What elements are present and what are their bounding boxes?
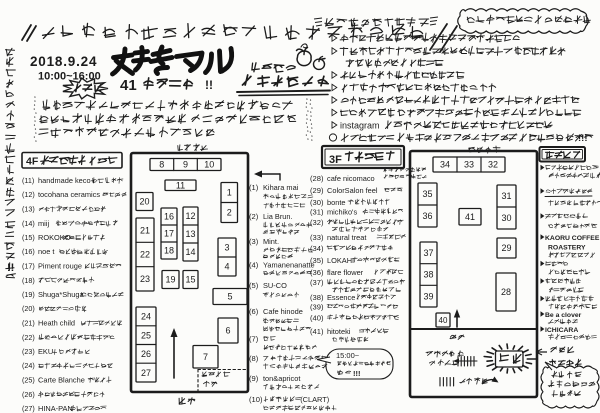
svg-text:(15): (15): [22, 233, 35, 242]
svg-text:(7): (7): [249, 335, 259, 344]
svg-text:(12): (12): [22, 190, 35, 199]
svg-text:19: 19: [165, 275, 175, 285]
svg-text:8: 8: [159, 160, 164, 170]
svg-text:25: 25: [141, 330, 151, 340]
svg-text:Kihara mai: Kihara mai: [263, 183, 299, 192]
svg-text:(18): (18): [22, 276, 35, 285]
svg-text:38: 38: [423, 270, 433, 280]
svg-text:(21): (21): [22, 319, 35, 328]
svg-text:3F: 3F: [329, 154, 342, 166]
svg-text:(8): (8): [249, 354, 259, 363]
svg-text:(29): (29): [310, 186, 324, 195]
svg-text:(24): (24): [22, 361, 35, 370]
svg-text:(16): (16): [22, 247, 35, 256]
svg-text:Be a clover: Be a clover: [545, 312, 582, 319]
svg-text:2: 2: [227, 208, 232, 218]
svg-text:(14): (14): [22, 219, 35, 228]
svg-text:(38): (38): [310, 293, 324, 302]
svg-text:29: 29: [501, 243, 511, 253]
svg-text:18: 18: [164, 246, 174, 256]
svg-text:39: 39: [423, 291, 433, 301]
svg-text:instagram: instagram: [340, 121, 380, 131]
svg-text:(13): (13): [22, 205, 35, 214]
svg-text:ROASTERY: ROASTERY: [548, 244, 586, 251]
svg-text:(19): (19): [22, 290, 35, 299]
svg-text:KAORU COFFEE: KAORU COFFEE: [545, 235, 600, 242]
svg-text:(25): (25): [22, 376, 35, 385]
svg-text:12: 12: [185, 211, 195, 221]
svg-text:32: 32: [488, 160, 498, 170]
svg-text:28: 28: [501, 287, 511, 297]
svg-text:SU-CO: SU-CO: [263, 281, 287, 290]
svg-text:HINA-PAN: HINA-PAN: [38, 404, 73, 413]
svg-text:miij: miij: [38, 219, 49, 228]
svg-text:(39): (39): [310, 303, 324, 312]
svg-text:Carte Blanche: Carte Blanche: [38, 376, 85, 385]
svg-text:10: 10: [204, 160, 214, 170]
svg-text:6: 6: [225, 326, 230, 336]
svg-text:40: 40: [439, 316, 448, 325]
svg-text:31: 31: [501, 191, 511, 201]
svg-text:(26): (26): [22, 390, 35, 399]
svg-text:(37): (37): [310, 278, 324, 287]
svg-text:(36): (36): [310, 268, 324, 277]
svg-text:Yamanenanatte: Yamanenanatte: [263, 261, 315, 270]
svg-text:hitoteki: hitoteki: [327, 327, 351, 336]
svg-text:(3): (3): [249, 237, 259, 246]
svg-text:15: 15: [185, 275, 195, 285]
svg-text:22: 22: [140, 250, 150, 260]
svg-text:(35): (35): [310, 256, 324, 265]
svg-text:natural treat: natural treat: [327, 233, 366, 242]
svg-text:(11): (11): [22, 176, 34, 185]
svg-text:(9): (9): [249, 374, 259, 383]
svg-text:(20): (20): [22, 304, 35, 313]
svg-text:(6): (6): [249, 307, 259, 316]
svg-text:17: 17: [164, 229, 174, 239]
svg-text:2018.9.24: 2018.9.24: [30, 54, 97, 69]
svg-text:flare flower: flare flower: [327, 268, 364, 277]
svg-text:11: 11: [176, 181, 185, 191]
svg-text:handmade keco+: handmade keco+: [38, 176, 95, 185]
svg-text:24: 24: [141, 312, 151, 322]
svg-text:(32): (32): [310, 218, 324, 227]
svg-text:(31): (31): [310, 208, 324, 217]
svg-text:(23): (23): [22, 347, 35, 356]
svg-text:EKU: EKU: [38, 347, 53, 356]
svg-text:34: 34: [440, 160, 450, 170]
svg-text:ICHICARA: ICHICARA: [545, 327, 578, 334]
svg-text:!!: !!: [205, 78, 213, 92]
svg-text:4: 4: [224, 262, 229, 272]
svg-text:26: 26: [141, 349, 151, 359]
svg-text:16: 16: [164, 212, 174, 222]
svg-text:35: 35: [422, 189, 432, 199]
svg-text:33: 33: [464, 160, 474, 170]
svg-text:(34): (34): [310, 244, 324, 253]
svg-text:(10): (10): [249, 395, 263, 404]
svg-text:1: 1: [227, 188, 232, 198]
svg-text:(5): (5): [249, 281, 259, 290]
svg-text:!!!: !!!: [578, 133, 588, 144]
svg-text:15:00~: 15:00~: [336, 351, 360, 360]
svg-text:Piment rouge: Piment rouge: [38, 262, 82, 271]
svg-text:cafe nicomaco: cafe nicomaco: [327, 174, 375, 183]
svg-text:noe t: noe t: [38, 247, 54, 256]
svg-text:ton&apricot: ton&apricot: [263, 374, 300, 383]
svg-text:michiko's: michiko's: [327, 208, 357, 217]
svg-text:(1): (1): [249, 183, 259, 192]
svg-text:Heath child: Heath child: [38, 319, 75, 328]
svg-text:14: 14: [185, 247, 195, 257]
svg-text:Shuga*Shuga: Shuga*Shuga: [38, 290, 85, 299]
svg-text:5: 5: [227, 292, 232, 302]
svg-text:3: 3: [224, 243, 229, 253]
svg-text:LOKAHI: LOKAHI: [327, 256, 354, 265]
svg-text:13: 13: [185, 229, 195, 239]
svg-text:ColorSalon feel: ColorSalon feel: [327, 186, 378, 195]
svg-text:21: 21: [140, 225, 150, 235]
svg-text:36: 36: [422, 211, 432, 221]
svg-text:tocohana ceramics: tocohana ceramics: [38, 190, 100, 199]
svg-text:37: 37: [423, 248, 433, 258]
svg-text:(4): (4): [249, 261, 259, 270]
svg-text:4F: 4F: [26, 156, 39, 168]
svg-text:(28): (28): [310, 174, 324, 183]
svg-text:Essence: Essence: [327, 293, 355, 302]
svg-text:9: 9: [183, 160, 188, 170]
svg-text:7: 7: [203, 352, 208, 362]
svg-text:30: 30: [501, 213, 511, 223]
svg-text:!!: !!: [7, 262, 14, 274]
svg-text:(2): (2): [249, 212, 259, 221]
svg-text:(40): (40): [310, 314, 324, 323]
svg-text:41: 41: [465, 212, 475, 222]
svg-text:Cafe hinode: Cafe hinode: [263, 307, 303, 316]
svg-text:(CLART): (CLART): [300, 395, 329, 404]
svg-text:27: 27: [141, 368, 151, 378]
svg-text:bonte: bonte: [327, 198, 346, 207]
svg-text:41: 41: [120, 77, 137, 94]
svg-text:20: 20: [139, 197, 149, 207]
svg-text:!!!: !!!: [353, 369, 361, 378]
svg-text:(41): (41): [310, 327, 324, 336]
svg-text:Mint.: Mint.: [263, 237, 279, 246]
svg-text:(33): (33): [310, 233, 324, 242]
svg-text:(30): (30): [310, 198, 324, 207]
svg-text:(17): (17): [22, 262, 35, 271]
svg-text:(27): (27): [22, 404, 35, 413]
svg-text:(22): (22): [22, 333, 35, 342]
svg-text:23: 23: [140, 274, 150, 284]
svg-text:Lia Brun.: Lia Brun.: [263, 212, 293, 221]
